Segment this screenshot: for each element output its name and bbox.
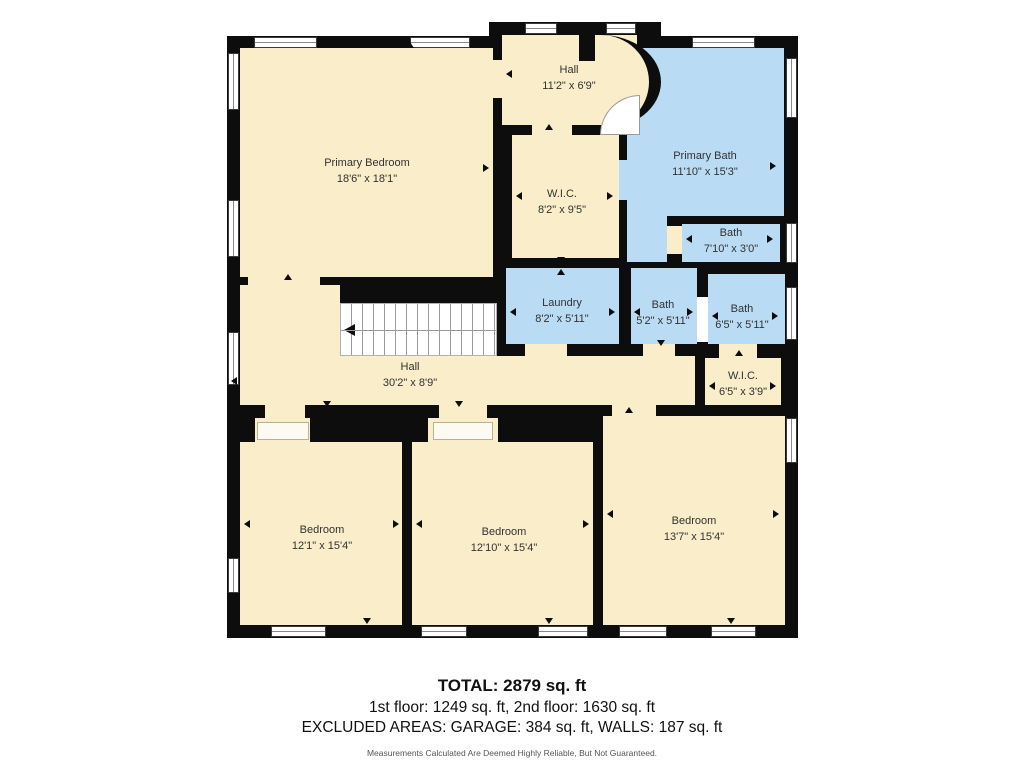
- window-glyph: [786, 223, 797, 263]
- closet: [257, 422, 309, 440]
- label-bedroom-left: Bedroom12'1" x 15'4": [292, 523, 352, 555]
- hall-wall-stub: [579, 35, 595, 61]
- door-marker: [455, 401, 463, 407]
- label-bedroom-right: Bedroom13'7" x 15'4": [664, 514, 724, 546]
- window-glyph: [786, 287, 797, 340]
- door-gap: [439, 405, 487, 418]
- label-wic-lower: W.I.C.6'5" x 3'9": [719, 369, 767, 401]
- total-area-text: TOTAL: 2879 sq. ft: [0, 676, 1024, 696]
- door-marker: [557, 269, 565, 275]
- door-gap: [697, 297, 708, 342]
- label-hall-main: Hall30'2" x 8'9": [383, 360, 437, 392]
- primary-bath-extension: [627, 216, 667, 262]
- dimension-marker: [709, 382, 715, 390]
- dimension-marker: [516, 192, 522, 200]
- window-glyph: [692, 37, 755, 48]
- excluded-areas-text: EXCLUDED AREAS: GARAGE: 384 sq. ft, WALL…: [0, 719, 1024, 737]
- door-marker: [406, 42, 414, 48]
- closet: [433, 422, 493, 440]
- room-hall-main: [240, 356, 695, 405]
- primary-bedroom-nook: [248, 277, 320, 307]
- door-marker: [557, 257, 565, 263]
- dimension-marker: [506, 70, 512, 78]
- door-marker: [657, 340, 665, 346]
- floor-plan-page: { "plan": { "rooms": [ {"id":"primary-be…: [0, 0, 1024, 768]
- dimension-marker: [773, 510, 779, 518]
- dimension-marker: [686, 235, 692, 243]
- door-marker: [363, 618, 371, 624]
- floor-plan: Primary Bedroom18'6" x 18'1" Hall11'2" x…: [227, 22, 798, 638]
- dimension-marker: [416, 520, 422, 528]
- label-primary-bath: Primary Bath11'10" x 15'3": [672, 149, 738, 181]
- dimension-marker: [244, 520, 250, 528]
- window-glyph: [228, 53, 239, 110]
- door-marker: [727, 618, 735, 624]
- dimension-marker: [607, 510, 613, 518]
- window-glyph: [606, 23, 636, 34]
- dimension-marker: [583, 520, 589, 528]
- door-gap: [667, 226, 682, 254]
- label-bath-right: Bath6'5" x 5'11": [715, 302, 768, 334]
- window-glyph: [421, 626, 467, 637]
- door-gap: [265, 405, 305, 418]
- dimension-marker: [607, 192, 613, 200]
- window-glyph: [538, 626, 588, 637]
- window-glyph: [525, 23, 557, 34]
- door-marker: [625, 407, 633, 413]
- door-marker: [545, 618, 553, 624]
- dimension-marker: [232, 164, 238, 172]
- floor-areas-text: 1st floor: 1249 sq. ft, 2nd floor: 1630 …: [0, 699, 1024, 717]
- window-glyph: [228, 200, 239, 257]
- dimension-marker: [483, 164, 489, 172]
- stair-direction-arrow: [344, 324, 355, 336]
- window-glyph: [271, 626, 326, 637]
- door-marker: [545, 124, 553, 130]
- door-gap: [619, 160, 627, 200]
- dimension-marker: [770, 382, 776, 390]
- door-marker: [284, 274, 292, 280]
- door-marker: [323, 401, 331, 407]
- disclaimer-text: Measurements Calculated Are Deemed Highl…: [0, 748, 1024, 758]
- door-gap: [493, 60, 502, 98]
- dimension-marker: [772, 312, 778, 320]
- label-primary-bedroom: Primary Bedroom18'6" x 18'1": [324, 156, 410, 188]
- window-glyph: [786, 418, 797, 463]
- window-glyph: [711, 626, 756, 637]
- dimension-marker: [609, 308, 615, 316]
- dimension-marker: [770, 162, 776, 170]
- label-hall-upper: Hall11'2" x 6'9": [542, 63, 595, 95]
- staircase: [340, 303, 497, 356]
- dimension-marker: [393, 520, 399, 528]
- window-glyph: [228, 558, 239, 593]
- area-summary: TOTAL: 2879 sq. ft 1st floor: 1249 sq. f…: [0, 676, 1024, 767]
- door-gap: [525, 344, 567, 356]
- label-wic-upper: W.I.C.8'2" x 9'5": [538, 187, 586, 219]
- window-glyph: [786, 58, 797, 118]
- door-gap: [612, 405, 656, 416]
- window-glyph: [410, 37, 470, 48]
- window-glyph: [619, 626, 667, 637]
- dimension-marker: [767, 235, 773, 243]
- door-marker: [735, 350, 743, 356]
- label-bath-small: Bath7'10" x 3'0": [704, 226, 758, 258]
- label-laundry: Laundry8'2" x 5'11": [535, 296, 588, 328]
- window-glyph: [254, 37, 317, 48]
- label-bath-center: Bath5'2" x 5'11": [636, 298, 689, 330]
- dimension-marker: [510, 308, 516, 316]
- dimension-marker: [231, 377, 237, 385]
- label-bedroom-center: Bedroom12'10" x 15'4": [471, 525, 537, 557]
